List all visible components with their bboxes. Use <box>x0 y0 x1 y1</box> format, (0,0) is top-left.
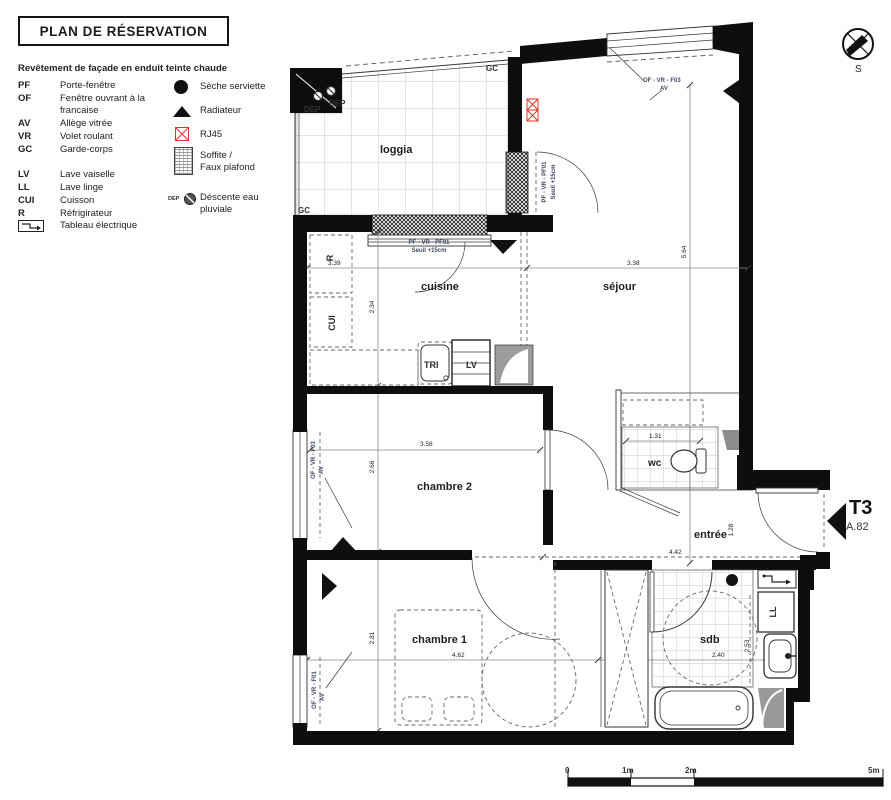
kitchen-basin <box>495 345 533 385</box>
room-label-wc: wc <box>647 458 662 469</box>
unit-tag: T3 A.82 <box>827 497 872 540</box>
opening-label-chambre1-av: AV <box>320 693 326 701</box>
room-label-sejour: séjour <box>603 281 637 293</box>
opening-label-sejour-window: OF - VR - F03 <box>643 78 681 84</box>
scale-1m: 1m <box>622 766 634 775</box>
cuisine-area: R CUI TRI LV PF - VR - PF <box>310 232 533 390</box>
wc-area: 1.31 0.90 wc <box>616 390 753 516</box>
dim-chambre2-d: 2.66 <box>369 460 376 473</box>
washbasin <box>764 634 796 678</box>
room-label-loggia: loggia <box>380 144 413 156</box>
turning-circle-chambre1 <box>482 633 576 727</box>
room-label-chambre2: chambre 2 <box>417 481 472 493</box>
opening-label-loggia-door: PF - VR - PF01 <box>542 161 548 203</box>
door-leaf-sdb <box>650 572 654 632</box>
radiator-chambre1 <box>322 573 337 600</box>
toilet <box>671 449 706 473</box>
bathtub <box>655 687 753 729</box>
room-label-cuisine: cuisine <box>421 281 459 293</box>
opening-label-sejour-av: AV <box>660 86 668 92</box>
unit-type: T3 <box>849 497 872 519</box>
dep-label-1: DEP <box>304 105 321 114</box>
door-leaf-chambre2 <box>545 430 550 490</box>
scale-bar: 0 1m 2m 5m <box>565 766 883 786</box>
floor-plan-sheet: PLAN DE RÉSERVATION Revêtement de façade… <box>0 0 891 800</box>
door-chambre1 <box>472 558 560 639</box>
nightstand-1 <box>402 697 432 721</box>
radiator-cuisine <box>490 240 517 254</box>
radiator-sejour <box>723 80 739 103</box>
electrical-panel-plan <box>758 570 796 588</box>
scale-2m: 2m <box>685 766 697 775</box>
nightstand-2 <box>444 697 474 721</box>
unit-lot: A.82 <box>846 521 869 533</box>
gc-label-top: GC <box>486 64 498 73</box>
room-label-entree: entrée <box>694 529 727 541</box>
door-chambre2 <box>548 430 608 490</box>
dep-label-2: DEP <box>329 99 346 108</box>
dim-chambre2-w: 3.58 <box>420 441 433 448</box>
opening-label-cuisine-window: PF - VR - PF01 <box>408 240 450 246</box>
lv-label: LV <box>466 360 477 370</box>
towel-dryer-plan <box>726 574 738 586</box>
sejour-top-wall: OF - VR - F03 AV <box>520 22 753 100</box>
chambre2-area: chambre 2 OF - VR - F03 AV <box>293 386 608 639</box>
sdb-floor-tiles <box>652 570 753 687</box>
cuisson-label: CUI <box>327 315 337 331</box>
ll-label: LL <box>768 606 778 617</box>
compass: S <box>843 29 873 75</box>
scale-5m: 5m <box>868 766 880 775</box>
opening-label-cuisine-seuil: Seuil +15cm <box>412 248 447 254</box>
dim-wc-w: 1.31 <box>649 433 662 440</box>
dim-cuisine-d: 2.34 <box>369 300 376 313</box>
dim-entree-w: 4.42 <box>669 549 682 556</box>
loggia-area: loggia GC GC DEP DEP <box>290 51 598 246</box>
tri-label: TRI <box>424 360 439 370</box>
wall-right <box>739 36 753 455</box>
bed <box>395 610 482 725</box>
dim-chambre1-d: 2.81 <box>369 631 376 644</box>
dim-sejour-h: 5.64 <box>681 245 688 258</box>
window-cuisine-sill <box>372 215 487 235</box>
gc-label-bottom: GC <box>298 206 310 215</box>
opening-label-chambre2-window: OF - VR - F03 <box>311 441 317 479</box>
room-label-chambre1: chambre 1 <box>412 634 467 646</box>
opening-label-chambre2-av: AV <box>319 466 325 474</box>
radiator-chambre2 <box>330 537 357 552</box>
downspout-symbol-2 <box>327 87 336 96</box>
door-leaf-entrance <box>756 488 818 493</box>
floor-plan-drawing: loggia GC GC DEP DEP <box>0 0 891 800</box>
wc-soffit <box>623 400 703 425</box>
dim-chambre1-w: 4.62 <box>452 652 465 659</box>
opening-label-chambre1-window: OF - VR - F01 <box>312 671 318 709</box>
entrance-arrow <box>827 503 846 540</box>
door-wc <box>620 488 680 516</box>
rj45-plan-symbol <box>527 99 538 121</box>
dim-cuisine-w: 3.39 <box>328 260 341 267</box>
duct-shaft <box>722 430 739 450</box>
closet <box>601 570 648 727</box>
compass-south: S <box>855 64 862 75</box>
dim-entree-h: 1.28 <box>728 523 735 536</box>
dim-sejour-w: 3.38 <box>627 260 640 267</box>
sdb-area: sdb LL <box>650 555 830 745</box>
downspout-symbol-1 <box>314 92 323 101</box>
door-entrance <box>758 492 818 552</box>
opening-label-loggia-seuil: Seuil +15cm <box>551 165 557 200</box>
window-loggia-door-sill <box>506 152 528 213</box>
room-label-sdb: sdb <box>700 634 720 646</box>
